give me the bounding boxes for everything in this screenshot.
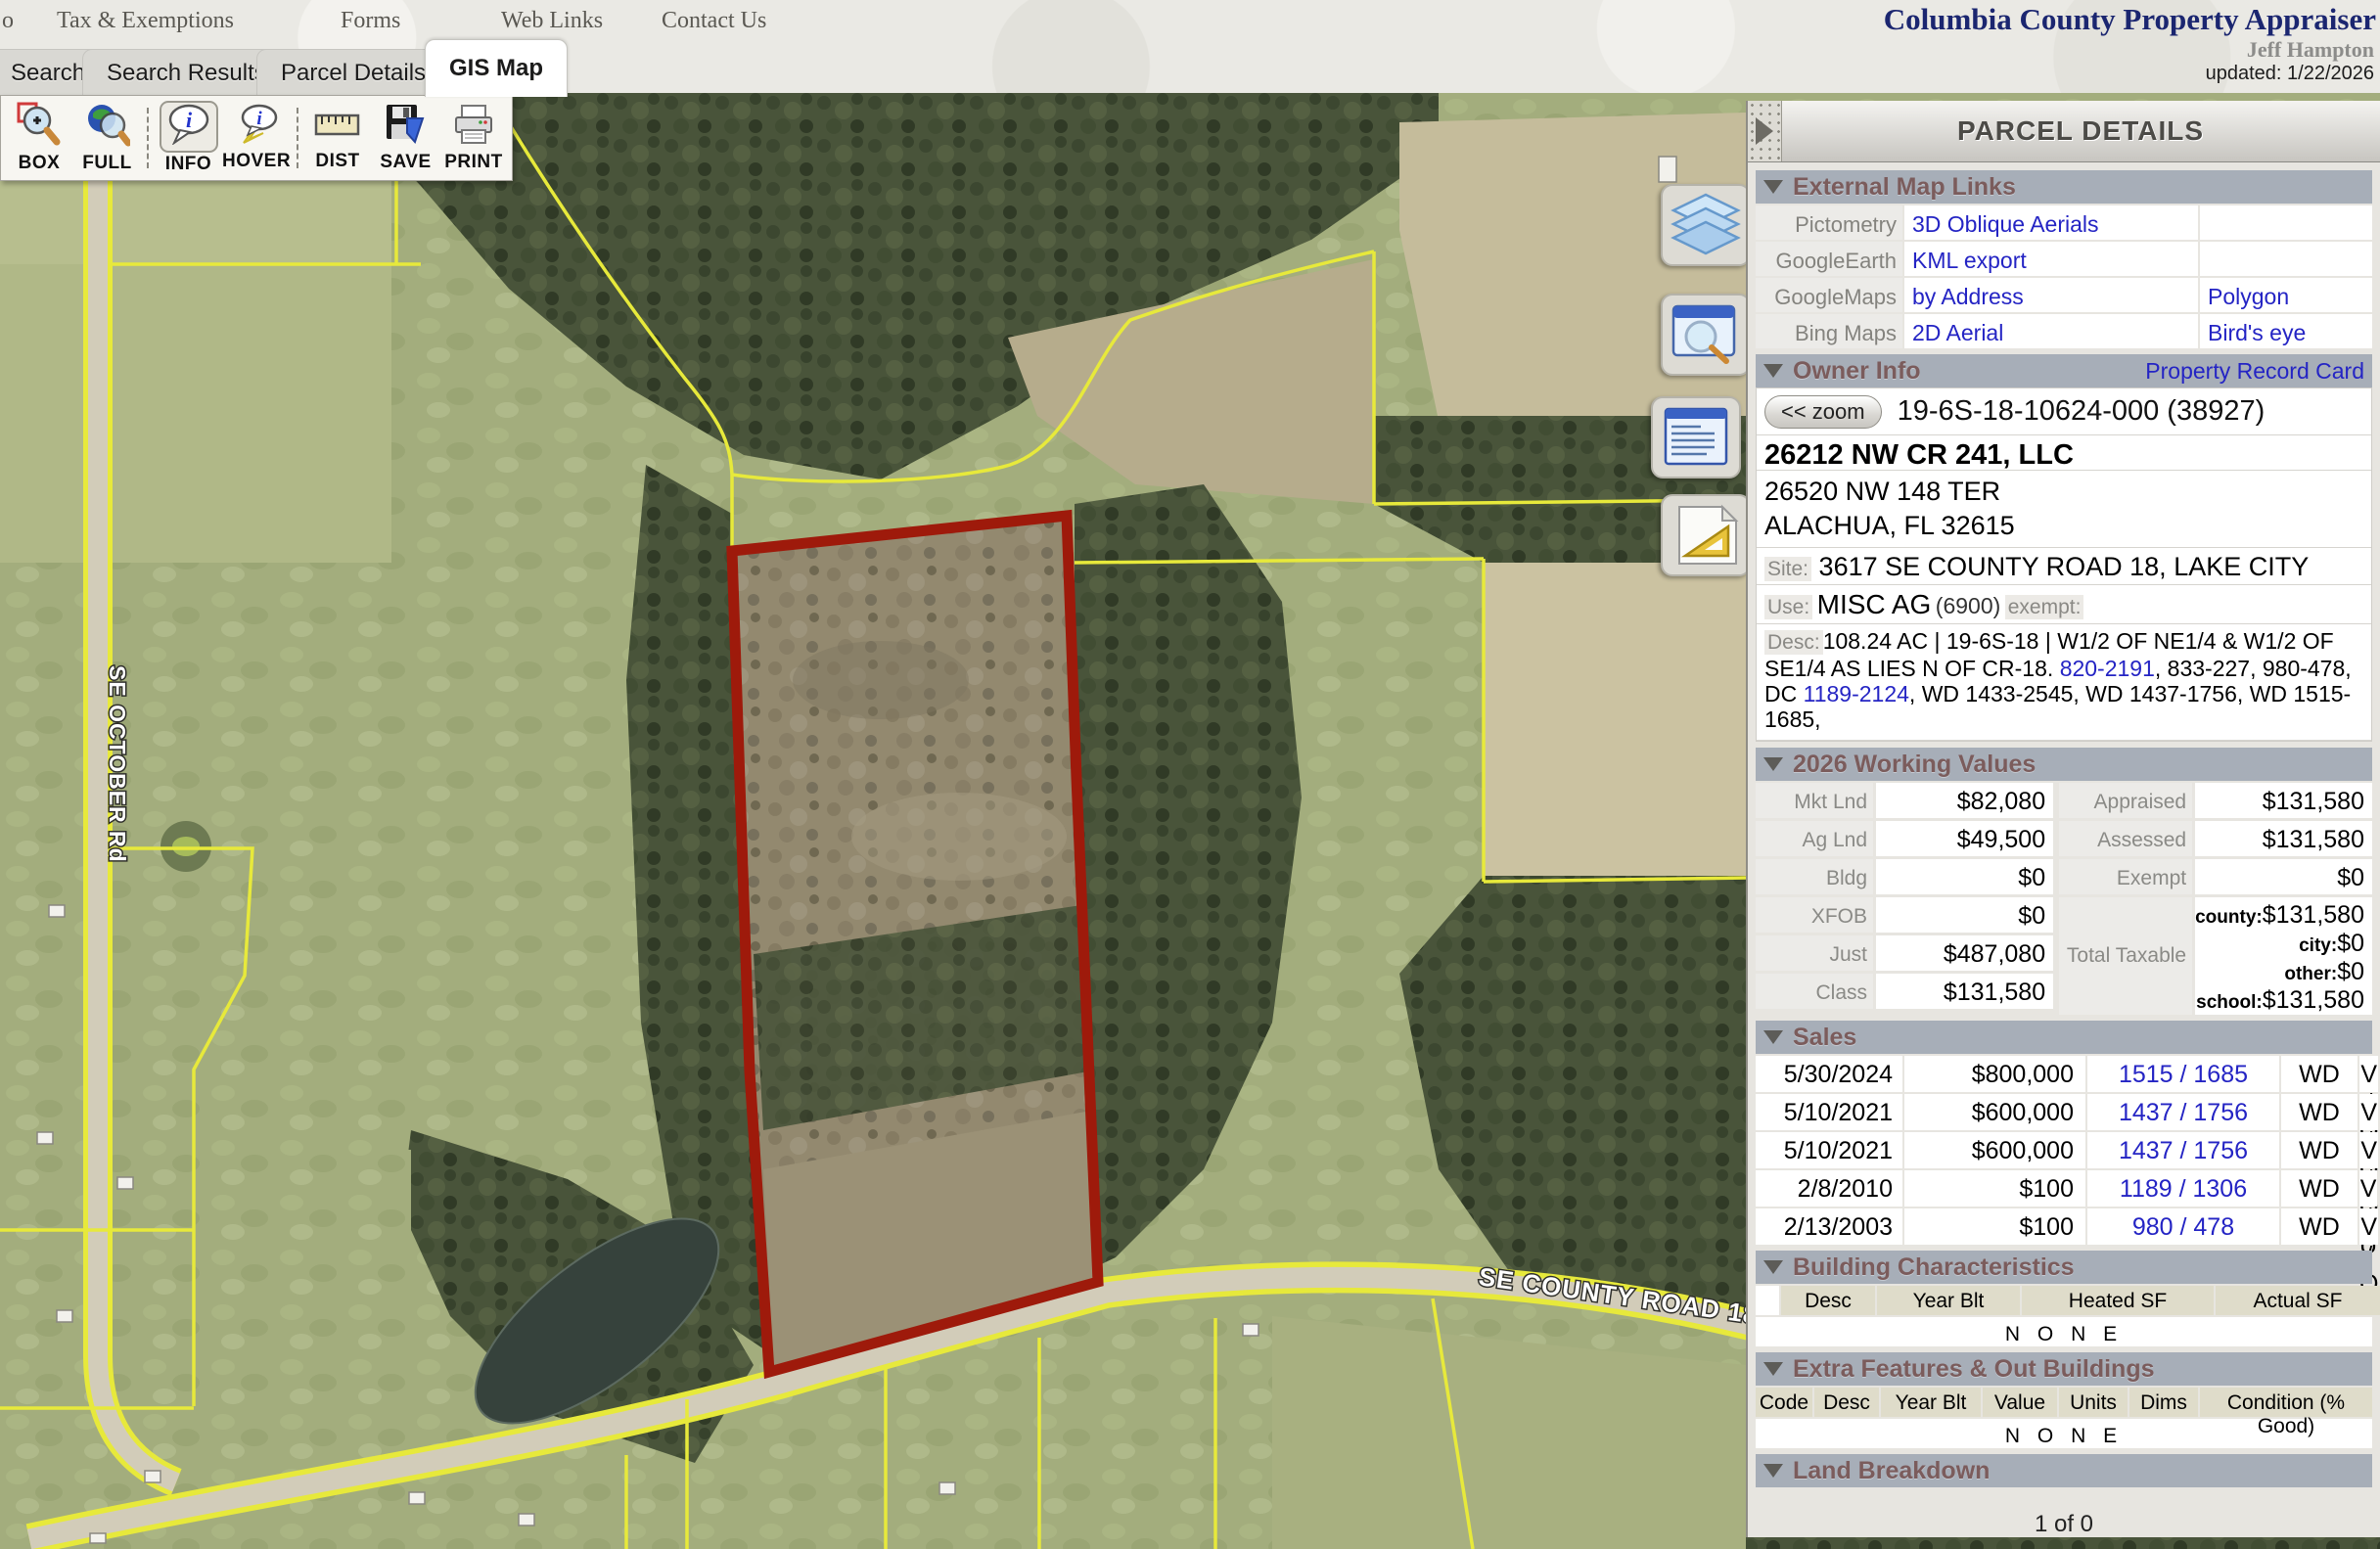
section-external-map-links: External Map Links Pictometry 3D Oblique… xyxy=(1756,170,2372,348)
toolbar-separator xyxy=(147,108,149,168)
collapse-triangle-icon xyxy=(1763,757,1783,771)
section-header[interactable]: 2026 Working Values xyxy=(1756,748,2372,781)
use-row: Use: MISC AG (6900) exempt: xyxy=(1757,585,2371,624)
small-pond xyxy=(172,837,200,856)
total-taxable-block: Total Taxable county:$131,580 city:$0 ot… xyxy=(2059,897,2372,1015)
owner-address: 26520 NW 148 TER ALACHUA, FL 32615 xyxy=(1757,471,2371,548)
ext-link-row: Bing Maps 2D Aerial Bird's eye xyxy=(1756,314,2372,348)
ext-link-row: Pictometry 3D Oblique Aerials xyxy=(1756,205,2372,240)
sale-row: 2/8/2010$100 1189 / 1306 WDV / U xyxy=(1756,1170,2372,1207)
section-land-breakdown: Land Breakdown xyxy=(1756,1454,2372,1487)
link-2d-aerial[interactable]: 2D Aerial xyxy=(1912,320,2003,345)
section-owner-info: Owner Info Property Record Card << zoom … xyxy=(1756,354,2372,742)
ext-link-row: GoogleEarth KML export xyxy=(1756,242,2372,276)
building-column-headers: Desc Year Blt Heated SF Actual SF Value xyxy=(1756,1286,2372,1315)
measure-icon xyxy=(1668,503,1744,568)
collapse-arrow-icon xyxy=(1756,117,1773,145)
link-3d-oblique-aerials[interactable]: 3D Oblique Aerials xyxy=(1912,211,2099,237)
owner-name: 26212 NW CR 241, LLC xyxy=(1757,435,2371,471)
collapse-triangle-icon xyxy=(1763,1464,1783,1478)
nav-item-contact-us[interactable]: Contact Us xyxy=(662,8,766,34)
use-code: (6900) xyxy=(1936,593,2000,618)
sale-book-page-link[interactable]: 980 / 478 xyxy=(2132,1213,2234,1241)
section-header[interactable]: Building Characteristics xyxy=(1756,1251,2372,1284)
sale-row: 5/10/2021$600,000 1437 / 1756 WDV / Q xyxy=(1756,1094,2372,1130)
distance-ruler-icon xyxy=(314,104,361,150)
tab-gis-map[interactable]: GIS Map xyxy=(425,39,568,97)
sale-book-page-link[interactable]: 1515 / 1685 xyxy=(2119,1061,2248,1088)
link-birds-eye[interactable]: Bird's eye xyxy=(2208,320,2306,345)
xfob-value: $0 xyxy=(1876,897,2053,933)
layers-tool-button[interactable] xyxy=(1661,184,1751,266)
info-mode-button[interactable]: i INFO xyxy=(159,101,219,175)
zoom-to-parcel-button[interactable]: << zoom xyxy=(1764,395,1882,429)
taxable-school: school:$131,580 xyxy=(2195,986,2364,1015)
sale-row: 2/13/2003$100 980 / 478 WDV / Q xyxy=(1756,1208,2372,1245)
printer-icon xyxy=(451,103,496,151)
tab-parcel-details[interactable]: Parcel Details xyxy=(256,49,450,96)
section-header[interactable]: Land Breakdown xyxy=(1756,1454,2372,1487)
mkt-lnd-value: $82,080 xyxy=(1876,783,2053,818)
section-header[interactable]: Sales xyxy=(1756,1021,2372,1054)
link-book-820-2191[interactable]: 820-2191 xyxy=(2060,656,2155,681)
sale-book-page-link[interactable]: 1437 / 1756 xyxy=(2119,1137,2248,1164)
hover-bubble-icon: i xyxy=(234,104,279,150)
zoom-box-icon xyxy=(17,102,62,152)
exempt-value: $0 xyxy=(2195,859,2372,894)
link-by-address[interactable]: by Address xyxy=(1912,284,2024,309)
building-none: N O N E xyxy=(1756,1317,2372,1346)
print-map-button[interactable]: PRINT xyxy=(443,103,504,173)
taxable-city: city:$0 xyxy=(2195,930,2364,958)
link-book-1189-2124[interactable]: 1189-2124 xyxy=(1804,681,1909,706)
panel-header: PARCEL DETAILS xyxy=(1748,101,2380,162)
svg-text:i: i xyxy=(185,108,192,132)
section-extra-features: Extra Features & Out Buildings Code Desc… xyxy=(1756,1352,2372,1448)
bldg-value: $0 xyxy=(1876,859,2053,894)
sale-row: 5/10/2021$600,000 1437 / 1756 WDV / Q xyxy=(1756,1132,2372,1168)
save-map-button[interactable]: SAVE xyxy=(376,103,436,173)
info-bubble-icon: i xyxy=(160,101,218,153)
ag-lnd-value: $49,500 xyxy=(1876,821,2053,856)
legal-description: Desc:108.24 AC | 19-6S-18 | W1/2 OF NE1/… xyxy=(1757,624,2371,741)
section-working-values: 2026 Working Values Mkt Lnd$82,080 Ag Ln… xyxy=(1756,748,2372,1015)
svg-text:i: i xyxy=(256,109,262,129)
section-sales: Sales 5/30/2024$800,000 1515 / 1685 WDV … xyxy=(1756,1021,2372,1245)
link-kml-export[interactable]: KML export xyxy=(1912,248,2027,273)
taxable-county: county:$131,580 xyxy=(2195,901,2364,930)
parcel-id-row: << zoom 19-6S-18-10624-000 (38927) xyxy=(1757,388,2371,435)
site-address: 3617 SE COUNTY ROAD 18, LAKE CITY xyxy=(1819,552,2310,581)
nav-item-web-links[interactable]: Web Links xyxy=(501,8,603,34)
collapse-triangle-icon xyxy=(1763,1260,1783,1274)
section-building-characteristics: Building Characteristics Desc Year Blt H… xyxy=(1756,1251,2372,1346)
distance-tool-button[interactable]: DIST xyxy=(307,104,368,172)
site-address-row: Site: 3617 SE COUNTY ROAD 18, LAKE CITY xyxy=(1757,548,2371,585)
sale-book-page-link[interactable]: 1189 / 1306 xyxy=(2120,1175,2247,1203)
sale-row: 5/30/2024$800,000 1515 / 1685 WDV / Q xyxy=(1756,1056,2372,1092)
parcel-id: 19-6S-18-10624-000 (38927) xyxy=(1898,395,2266,428)
section-header[interactable]: External Map Links xyxy=(1756,170,2372,204)
report-window-icon xyxy=(1658,405,1734,470)
collapse-triangle-icon xyxy=(1763,180,1783,194)
taxable-other: other:$0 xyxy=(2195,958,2364,986)
collapse-triangle-icon xyxy=(1763,364,1783,378)
parcel-details-panel: PARCEL DETAILS External Map Links Pictom… xyxy=(1746,101,2380,1537)
hover-mode-button[interactable]: i HOVER xyxy=(226,104,287,172)
layers-icon xyxy=(1668,193,1744,257)
pager: 1 of 0 xyxy=(1756,1493,2372,1538)
section-header[interactable]: Owner Info Property Record Card xyxy=(1756,354,2372,387)
class-value: $131,580 xyxy=(1876,974,2053,1009)
section-header[interactable]: Extra Features & Out Buildings xyxy=(1756,1352,2372,1386)
use-value: MISC AG xyxy=(1817,589,1932,619)
parcel-mottle-2 xyxy=(851,793,1067,881)
measure-tool-button[interactable] xyxy=(1661,494,1751,576)
report-tool-button[interactable] xyxy=(1651,396,1741,478)
just-value: $487,080 xyxy=(1876,935,2053,971)
page-title: Columbia County Property Appraiser xyxy=(1884,2,2376,37)
zoom-full-icon xyxy=(85,102,130,152)
link-polygon[interactable]: Polygon xyxy=(2208,284,2289,309)
field-mid-right xyxy=(1484,563,1746,878)
collapse-triangle-icon xyxy=(1763,1362,1783,1376)
save-disk-icon xyxy=(384,103,429,151)
panel-title: PARCEL DETAILS xyxy=(1781,101,2380,161)
parcel-mottle-1 xyxy=(793,641,969,719)
toolbar-separator xyxy=(297,108,298,168)
nav-item-tax-exemptions[interactable]: Tax & Exemptions xyxy=(57,8,234,34)
collapse-triangle-icon xyxy=(1763,1030,1783,1044)
assessed-value: $131,580 xyxy=(2195,821,2372,856)
road-label-se-october-rd: SE OCTOBER Rd xyxy=(105,665,130,863)
collapse-panel-button[interactable] xyxy=(1748,101,1782,161)
nav-item-forms[interactable]: Forms xyxy=(341,8,400,34)
nav-item-partial[interactable]: o xyxy=(2,8,14,34)
sale-book-page-link[interactable]: 1437 / 1756 xyxy=(2119,1099,2248,1126)
zoom-full-button[interactable]: FULL xyxy=(77,102,138,174)
extra-features-column-headers: Code Desc Year Blt Value Units Dims Cond… xyxy=(1756,1388,2372,1417)
map-toolbar: BOX FULL i INFO i HOVER D xyxy=(0,95,513,181)
identify-window-icon xyxy=(1668,302,1744,367)
updated-date: updated: 1/22/2026 xyxy=(2206,63,2374,85)
ext-link-row: GoogleMaps by Address Polygon xyxy=(1756,278,2372,312)
zoom-box-button[interactable]: BOX xyxy=(9,102,69,174)
link-property-record-card[interactable]: Property Record Card xyxy=(2145,358,2364,384)
appraiser-name: Jeff Hampton xyxy=(2247,37,2374,63)
appraised-value: $131,580 xyxy=(2195,783,2372,818)
identify-tool-button[interactable] xyxy=(1661,294,1751,376)
